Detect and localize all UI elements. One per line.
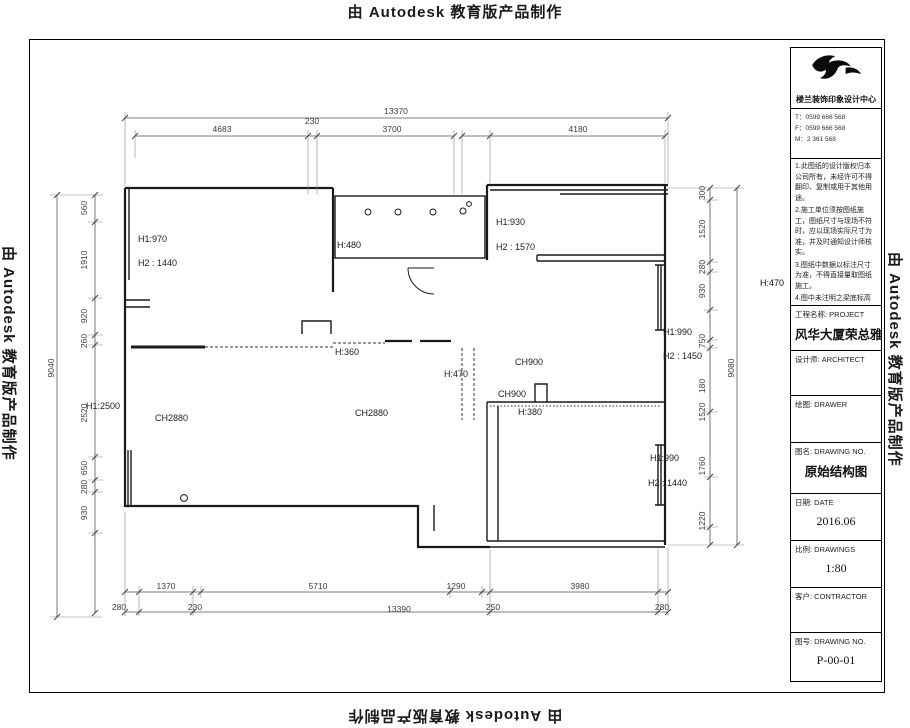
client-label: 客户: CONTRACTOR [795, 591, 877, 602]
drawing-name: 原始结构图 [795, 461, 877, 480]
company-bird-logo [805, 51, 867, 87]
drawing-name-label: 图名: DRAWING NO. [795, 446, 877, 457]
dim-bottom2-seg: 230 [188, 602, 202, 612]
room-label-h1-970: H1:970 [138, 234, 167, 244]
dim-right-seg: 1220 [697, 512, 707, 531]
dim-bottom2-seg: 280 [112, 602, 126, 612]
dim-right-seg: 1520 [697, 403, 707, 422]
contact-section: T：0599 666 568 F：0599 666 568 M：2 361 56… [791, 109, 881, 159]
dim-left-seg: 260 [79, 334, 89, 348]
drawer-label: 绘图: DRAWER [795, 399, 877, 410]
exterior-walls [125, 185, 668, 547]
project-label: 工程名称: PROJECT [795, 309, 877, 320]
dim-right-seg: 750 [697, 334, 707, 348]
dim-right-seg: 1520 [697, 220, 707, 239]
date-section: 日期: DATE 2016.06 [791, 494, 881, 541]
dim-bottom2-seg: 280 [655, 602, 669, 612]
floor-plan-drawing [0, 0, 910, 728]
dim-left-seg: 650 [79, 461, 89, 475]
note-item: 2.施工单位须按图纸施工，图纸尺寸与现场不符时，应以现场实际尺寸为准，并及时通知… [795, 206, 877, 259]
wall-stubs [131, 341, 451, 347]
interior-walls [125, 188, 668, 547]
dashed-beam-lines [205, 343, 660, 420]
dim-right-seg: 280 [697, 260, 707, 274]
dim-left-seg: 280 [79, 480, 89, 494]
dim-top-seg: 4683 [213, 124, 232, 134]
scale-value: 1:80 [795, 561, 877, 576]
drawing-no-section: 图号: DRAWING NO. P-00-01 [791, 633, 881, 683]
scale-section: 比例: DRAWINGS 1:80 [791, 541, 881, 588]
room-label-ch900-b: CH900 [498, 389, 526, 399]
dim-bottom2-seg: 250 [486, 602, 500, 612]
dim-bottom-seg: 1370 [157, 581, 176, 591]
dim-top-seg: 4180 [569, 124, 588, 134]
scale-label: 比例: DRAWINGS [795, 544, 877, 555]
notes-section: 1.此图纸的设计版权归本公司所有，未经许可不得翻印、复制或用于其他用途。 2.施… [791, 159, 881, 306]
drawing-no-value: P-00-01 [795, 653, 877, 668]
drawing-name-section: 图名: DRAWING NO. 原始结构图 [791, 443, 881, 494]
room-label-ch900-a: CH900 [515, 357, 543, 367]
dim-right-seg: 1760 [697, 457, 707, 476]
dim-bottom2-overall: 13390 [387, 604, 411, 614]
room-label-h1-2500: H1:2500 [86, 401, 120, 411]
drawing-no-label: 图号: DRAWING NO. [795, 636, 877, 647]
title-block: 楼兰装饰印象设计中心 T：0599 666 568 F：0599 666 568… [790, 47, 882, 682]
logo-section: 楼兰装饰印象设计中心 [791, 48, 881, 109]
room-label-h1-990-mid: H1:990 [663, 327, 692, 337]
room-label-ch2880-a: CH2880 [155, 413, 188, 423]
dimension-lines [57, 118, 737, 617]
dim-bottom-seg: 1290 [447, 581, 466, 591]
company-name: 楼兰装饰印象设计中心 [795, 94, 877, 105]
room-label-h-480: H:480 [337, 240, 361, 250]
date-label: 日期: DATE [795, 497, 877, 508]
dimension-ticks [54, 115, 740, 620]
dim-right-seg: 300 [697, 186, 707, 200]
project-name: 风华大厦荣总雅居 [795, 324, 877, 343]
client-section: 客户: CONTRACTOR [791, 588, 881, 633]
project-section: 工程名称: PROJECT 风华大厦荣总雅居 [791, 306, 881, 351]
room-label-h-380: H:380 [518, 407, 542, 417]
dim-right-seg: 180 [697, 379, 707, 393]
room-label-h2-1440-bottom: H2 : 1440 [648, 478, 687, 488]
door-swing [408, 268, 434, 294]
note-item: 4.图中未注明之梁底标高均为 H:470，施工前请以现场实测为准。 [795, 294, 877, 306]
room-label-ch2880-b: CH2880 [355, 408, 388, 418]
room-label-h2-1440: H2 : 1440 [138, 258, 177, 268]
dim-bottom-seg: 5710 [309, 581, 328, 591]
room-label-h-470: H:470 [444, 369, 468, 379]
dim-top-seg: 3700 [383, 124, 402, 134]
dim-left-seg: 930 [79, 506, 89, 520]
date-value: 2016.06 [795, 514, 877, 529]
dim-right-overall: 9080 [726, 359, 736, 378]
cad-floor-plan-page: 由 Autodesk 教育版产品制作 由 Autodesk 教育版产品制作 由 … [0, 0, 910, 728]
room-label-h1-990-bottom: H1:990 [650, 453, 679, 463]
note-item: 3.图纸中数据以标注尺寸为准，不得直接量取图纸施工。 [795, 261, 877, 293]
dim-right-seg: 930 [697, 284, 707, 298]
room-label-h-360: H:360 [335, 347, 359, 357]
architect-section: 设计师: ARCHITECT [791, 351, 881, 396]
note-item: 1.此图纸的设计版权归本公司所有，未经许可不得翻印、复制或用于其他用途。 [795, 162, 877, 204]
fixture-circles [181, 202, 472, 502]
contact-line: T：0599 666 568 [795, 112, 877, 123]
drawer-section: 绘图: DRAWER [791, 396, 881, 443]
dim-top-seg: 230 [305, 116, 319, 126]
room-label-h1-930: H1:930 [496, 217, 525, 227]
room-label-h2-1450: H2 : 1450 [663, 351, 702, 361]
contact-line: M：2 361 568 [795, 134, 877, 145]
room-label-h2-1570: H2 : 1570 [496, 242, 535, 252]
note-h470-overlay: H:470 [760, 278, 784, 288]
architect-label: 设计师: ARCHITECT [795, 354, 877, 365]
dim-left-seg: 920 [79, 309, 89, 323]
dim-top-overall: 13370 [384, 106, 408, 116]
dim-left-seg: 560 [79, 201, 89, 215]
dim-bottom-seg: 3980 [571, 581, 590, 591]
dim-left-overall: 9040 [46, 359, 56, 378]
contact-line: F：0599 666 568 [795, 123, 877, 134]
dim-left-seg: 1910 [79, 251, 89, 270]
